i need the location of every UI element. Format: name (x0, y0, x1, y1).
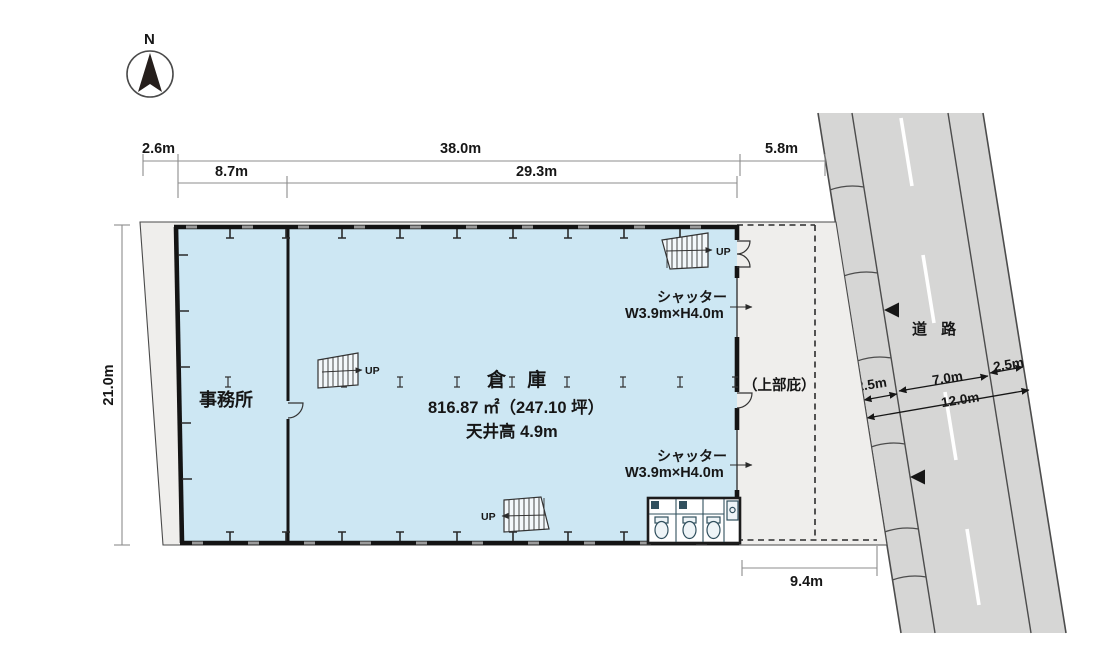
canopy-label: （上部庇） (743, 376, 816, 394)
stair-icon (504, 497, 549, 532)
dim-site-left-width: 2.6m (142, 141, 175, 157)
cistern-icon (651, 501, 659, 509)
dim-building-width: 38.0m (440, 141, 481, 157)
toilet-icon (655, 522, 668, 539)
shutter-2-size: W3.9m×H4.0m (625, 465, 724, 481)
floor-plan-svg: 道 路 2.5m 7.0m 2.5m 12.0m （上部庇） (0, 0, 1109, 656)
shutter-1-size: W3.9m×H4.0m (625, 306, 724, 322)
shutter-1-label: シャッター (657, 289, 727, 305)
dim-warehouse-width: 29.3m (516, 164, 557, 180)
shutter-2-label: シャッター (657, 448, 727, 464)
dim-site-depth: 21.0m (101, 364, 117, 405)
warehouse-label: 倉 庫 (486, 368, 554, 391)
toilet-icon (683, 522, 696, 539)
compass: N (127, 31, 173, 97)
dim-east-gap: 5.8m (765, 141, 798, 157)
cistern-icon (679, 501, 687, 509)
up-label: UP (481, 511, 496, 523)
toilet-icon (707, 522, 720, 539)
up-label: UP (716, 246, 731, 258)
warehouse-area-label: 816.87 ㎡（247.10 坪） (428, 397, 604, 417)
dim-south-gap: 9.4m (790, 574, 823, 590)
road-label: 道 路 (912, 320, 961, 338)
building: 事務所 倉 庫 816.87 ㎡（247.10 坪） 天井高 4.9m UP U… (174, 225, 752, 545)
sink-icon (730, 507, 735, 512)
toilet-block (648, 498, 740, 543)
dim-office-width: 8.7m (215, 164, 248, 180)
north-label: N (144, 31, 155, 48)
floor-plan-canvas: 道 路 2.5m 7.0m 2.5m 12.0m （上部庇） (0, 0, 1109, 656)
office-label: 事務所 (199, 389, 253, 410)
ceiling-height-label: 天井高 4.9m (466, 421, 558, 441)
up-label: UP (365, 365, 380, 377)
